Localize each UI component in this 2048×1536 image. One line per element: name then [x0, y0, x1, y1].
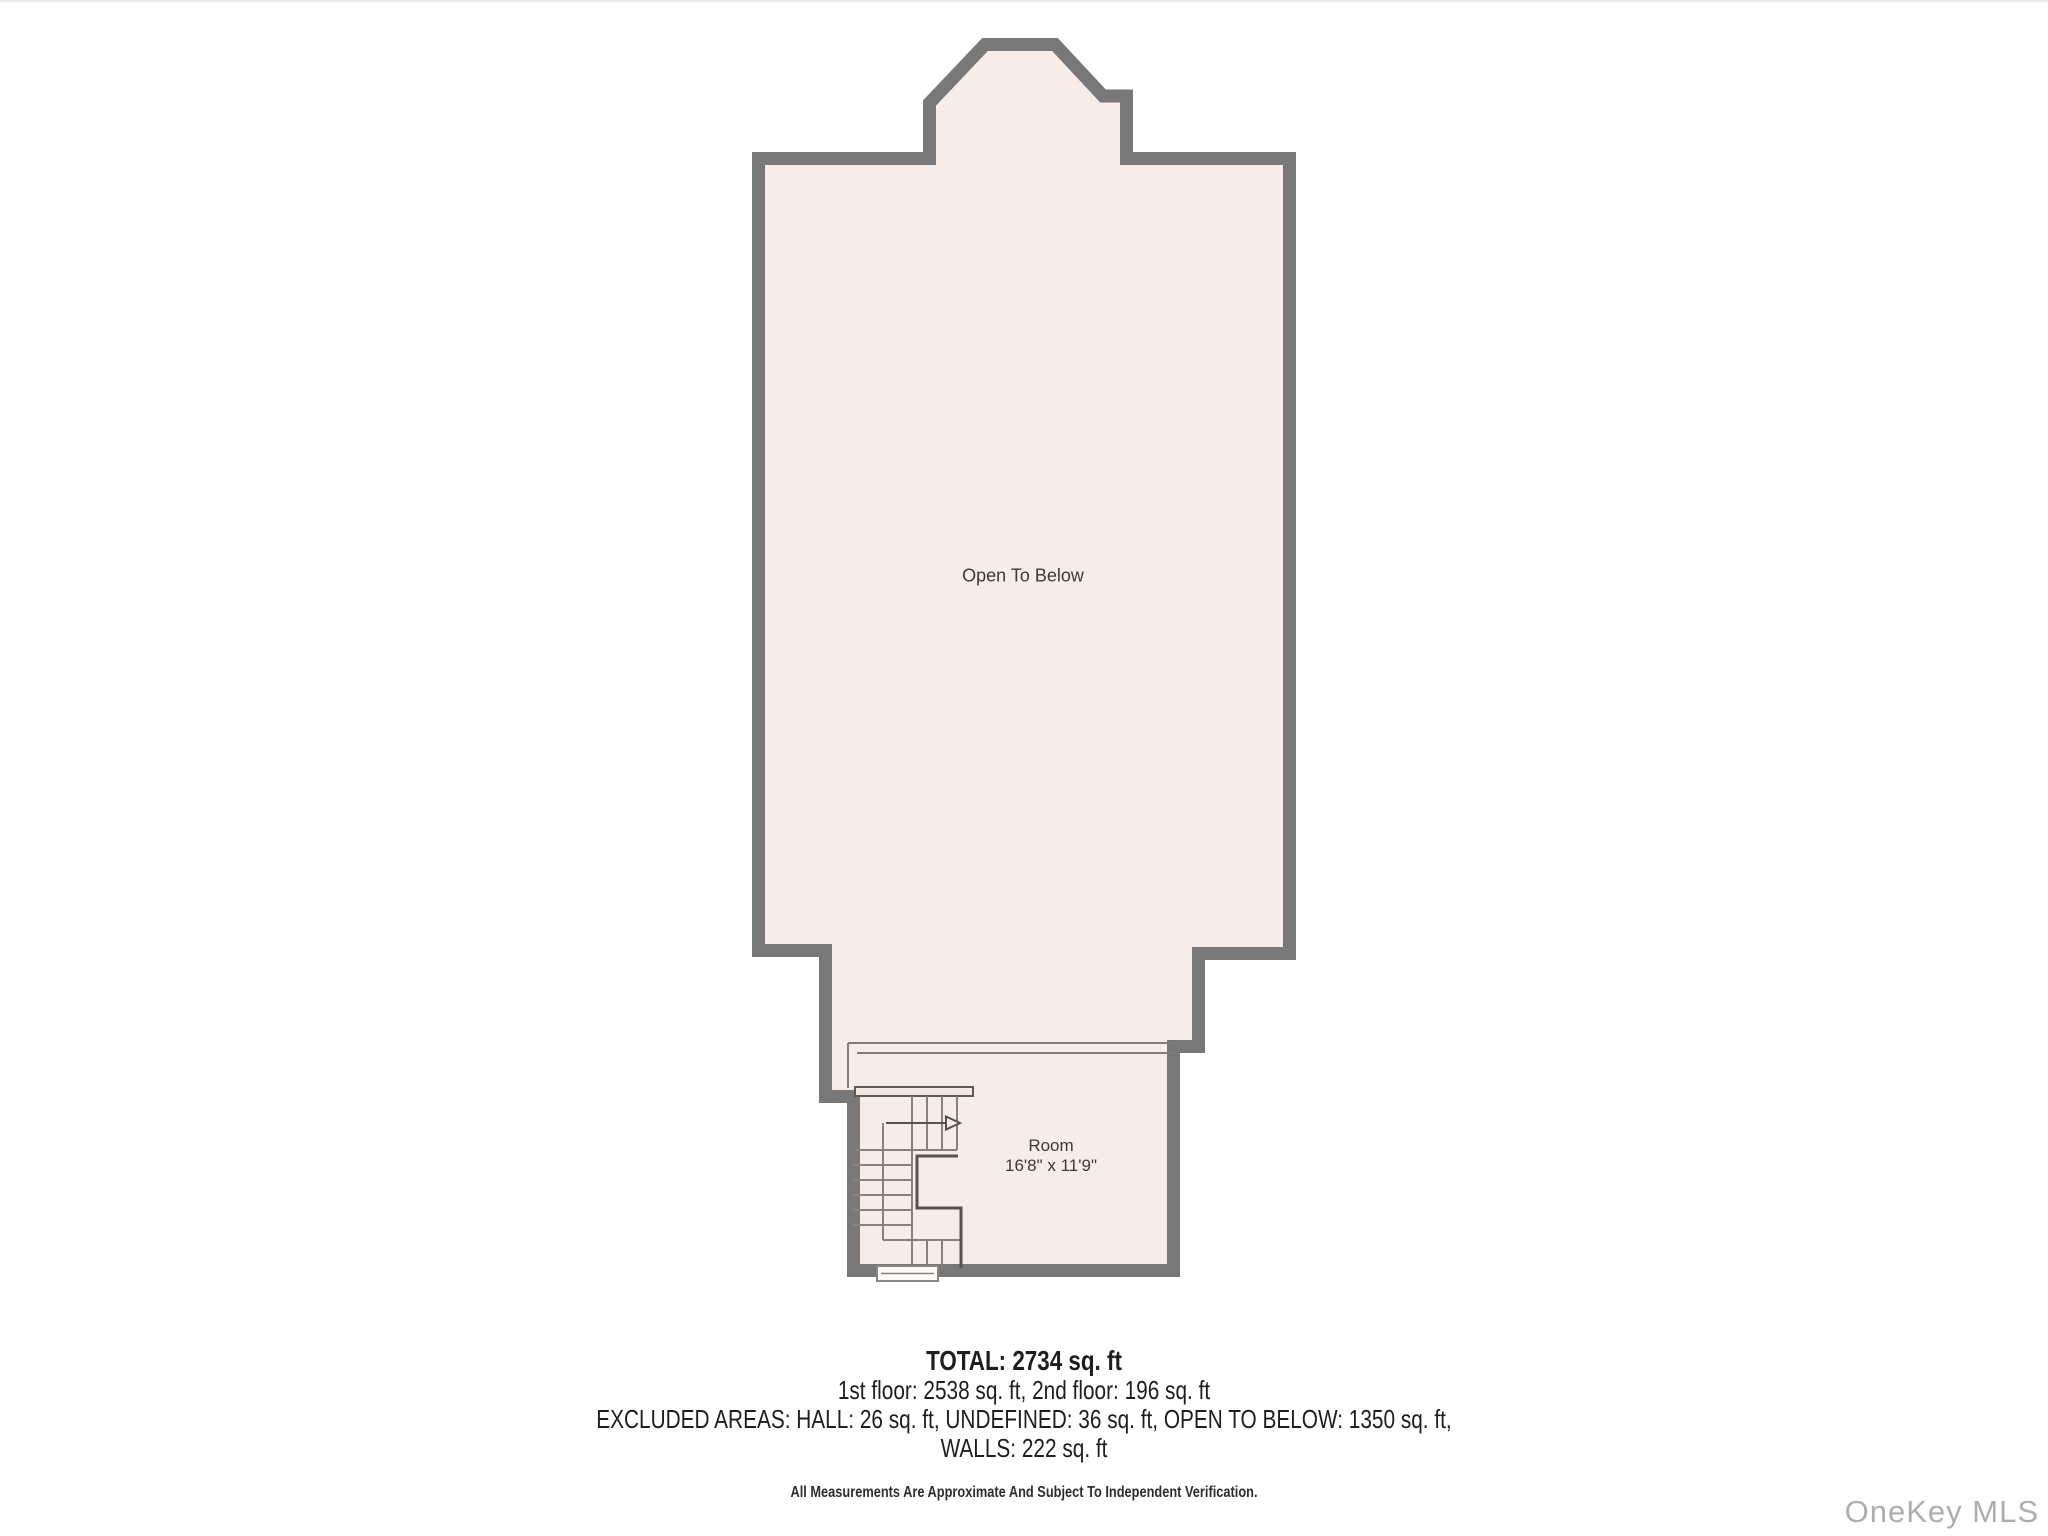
- mls-watermark: OneKey MLS: [1845, 1494, 2039, 1530]
- floor-plan-svg: [0, 0, 2048, 1536]
- walls-area-text: WALLS: 222 sq. ft: [205, 1434, 1843, 1463]
- floor-areas-text: 1st floor: 2538 sq. ft, 2nd floor: 196 s…: [205, 1376, 1843, 1405]
- total-area-text: TOTAL: 2734 sq. ft: [205, 1346, 1843, 1376]
- open-to-below-label: Open To Below: [962, 566, 1084, 587]
- door: [877, 1266, 938, 1281]
- disclaimer-text: All Measurements Are Approximate And Sub…: [205, 1484, 1843, 1502]
- stair-handrail: [855, 1087, 973, 1096]
- excluded-areas-text: EXCLUDED AREAS: HALL: 26 sq. ft, UNDEFIN…: [205, 1405, 1843, 1434]
- plan-outline: [759, 45, 1290, 1271]
- floor-plan-page: Open To Below Room 16'8" x 11'9" TOTAL: …: [0, 0, 2048, 1536]
- room-name: Room: [1005, 1136, 1097, 1156]
- room-dimensions: 16'8" x 11'9": [1005, 1156, 1097, 1176]
- room-label: Room 16'8" x 11'9": [1005, 1136, 1097, 1176]
- area-summary: TOTAL: 2734 sq. ft 1st floor: 2538 sq. f…: [205, 1346, 1843, 1463]
